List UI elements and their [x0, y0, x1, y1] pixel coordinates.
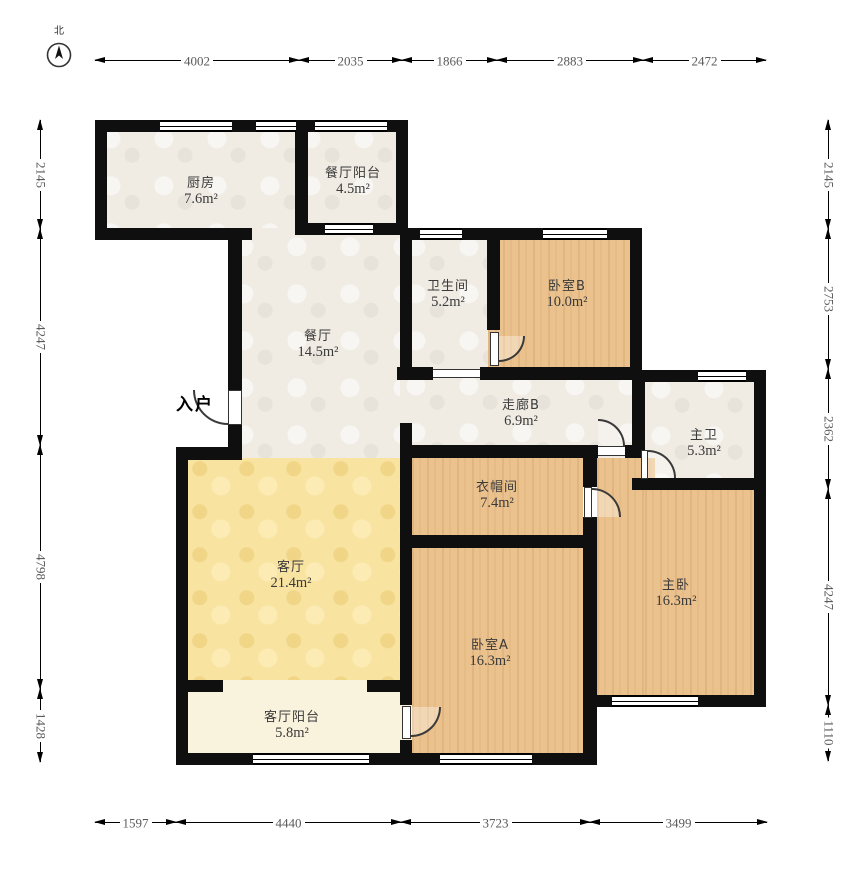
window — [440, 753, 532, 765]
room-area: 7.6m² — [184, 191, 218, 208]
wall-segment — [487, 240, 500, 330]
window — [315, 120, 387, 132]
room-area: 16.3m² — [655, 593, 696, 610]
dim-segment: 2035 — [299, 60, 402, 61]
dim-segment: 1110 — [828, 705, 829, 761]
room-name: 卧室B — [546, 275, 587, 294]
entry-label: 入户 — [176, 390, 214, 415]
dim-segment: 3499 — [590, 822, 767, 823]
wall-segment — [397, 367, 433, 380]
dim-segment: 2472 — [643, 60, 766, 61]
dim-label: 1110 — [823, 717, 836, 748]
room-name: 餐厅 — [297, 325, 338, 344]
dim-segment: 3723 — [401, 822, 590, 823]
wall-segment — [400, 240, 412, 380]
room-area: 5.3m² — [687, 443, 721, 460]
label-dining-balcony: 餐厅阳台 4.5m² — [325, 162, 381, 198]
dim-label: 2145 — [823, 159, 836, 191]
wall-segment — [396, 120, 408, 235]
dim-label: 3499 — [663, 817, 695, 830]
label-living: 客厅 21.4m² — [270, 556, 311, 592]
wall-segment — [583, 458, 597, 487]
label-living-balcony: 客厅阳台 5.8m² — [264, 706, 320, 742]
svg-text:北: 北 — [54, 25, 64, 37]
dim-label: 2035 — [335, 55, 367, 68]
room-name: 衣帽间 — [476, 476, 518, 495]
window — [612, 695, 698, 707]
dim-label: 1866 — [434, 55, 466, 68]
label-bedroom-b: 卧室B 10.0m² — [546, 275, 587, 311]
dim-segment: 2883 — [497, 60, 643, 61]
room-area: 16.3m² — [469, 653, 510, 670]
bathroom-doorway — [433, 369, 480, 378]
room-name: 客厅阳台 — [264, 706, 320, 725]
room-area: 6.9m² — [502, 413, 540, 430]
room-area: 10.0m² — [546, 294, 587, 311]
dim-label: 2145 — [35, 159, 48, 191]
wall-segment — [176, 447, 188, 765]
wall-segment — [412, 535, 583, 548]
dim-segment: 4247 — [40, 229, 41, 445]
window — [253, 753, 369, 765]
compass-icon: 北 — [42, 22, 76, 74]
room-area: 7.4m² — [476, 495, 518, 512]
entry-door-leaf — [228, 390, 242, 425]
dim-segment: 4002 — [95, 60, 299, 61]
dim-label: 4798 — [35, 551, 48, 583]
dim-segment: 2145 — [828, 120, 829, 229]
wall-segment — [630, 230, 642, 380]
wall-segment — [583, 517, 597, 765]
bedroom-b-door-leaf — [490, 332, 499, 366]
cloakroom-door-leaf — [584, 487, 592, 518]
room-area: 5.8m² — [264, 725, 320, 742]
dim-label: 2472 — [689, 55, 721, 68]
label-bathroom: 卫生间 5.2m² — [427, 275, 469, 311]
dim-label: 4247 — [35, 321, 48, 353]
window — [543, 228, 607, 240]
room-name: 厨房 — [184, 172, 218, 191]
wall-segment — [295, 132, 308, 223]
wall-segment — [95, 228, 252, 240]
dim-label: 2362 — [823, 413, 836, 445]
wall-segment — [632, 382, 645, 450]
wall-segment — [400, 740, 412, 765]
room-area: 14.5m² — [297, 344, 338, 361]
dim-label: 3723 — [480, 817, 512, 830]
room-name: 卧室A — [469, 634, 510, 653]
dim-label: 4002 — [181, 55, 213, 68]
window — [256, 120, 296, 132]
wall-segment — [480, 367, 642, 380]
room-name: 主卫 — [687, 424, 721, 443]
dim-label: 1597 — [120, 817, 152, 830]
room-name: 餐厅阳台 — [325, 162, 381, 181]
label-kitchen: 厨房 7.6m² — [184, 172, 218, 208]
window — [698, 370, 746, 382]
wall-segment — [400, 423, 412, 705]
dim-segment: 2145 — [40, 120, 41, 229]
dim-segment: 1866 — [402, 60, 497, 61]
dim-segment: 1597 — [95, 822, 176, 823]
room-name: 走廊B — [502, 394, 540, 413]
label-dining: 餐厅 14.5m² — [297, 325, 338, 361]
master-bath-door-leaf — [641, 450, 648, 479]
room-area: 4.5m² — [325, 181, 381, 198]
wall-segment — [412, 445, 598, 458]
dim-segment: 2362 — [828, 369, 829, 489]
compass: 北 — [42, 22, 76, 78]
dim-label: 1428 — [35, 710, 48, 742]
room-name: 主卧 — [655, 574, 696, 593]
dim-label: 2883 — [554, 55, 586, 68]
dim-segment: 4440 — [176, 822, 401, 823]
label-master-bedroom: 主卧 16.3m² — [655, 574, 696, 610]
corridor-doorway — [598, 446, 625, 456]
wall-segment — [95, 120, 107, 240]
window — [160, 120, 232, 132]
dim-label: 2753 — [823, 283, 836, 315]
dim-label: 4247 — [823, 581, 836, 613]
label-bedroom-a: 卧室A 16.3m² — [469, 634, 510, 670]
dim-segment: 4247 — [828, 489, 829, 705]
dim-label: 4440 — [273, 817, 305, 830]
dim-segment: 2753 — [828, 229, 829, 369]
room-name: 卫生间 — [427, 275, 469, 294]
balcony-door-leaf — [402, 706, 411, 739]
dim-segment: 1428 — [40, 689, 41, 762]
label-cloakroom: 衣帽间 7.4m² — [476, 476, 518, 512]
dim-segment: 4798 — [40, 445, 41, 689]
window — [420, 228, 462, 240]
floor-plan-page: 厨房 7.6m² 餐厅阳台 4.5m² 餐厅 14.5m² 卫生间 5.2m² … — [0, 0, 863, 889]
label-corridor-b: 走廊B 6.9m² — [502, 394, 540, 430]
wall-segment — [295, 223, 325, 235]
room-area: 21.4m² — [270, 575, 311, 592]
wall-segment — [228, 240, 242, 390]
wall-segment — [632, 478, 766, 490]
room-name: 客厅 — [270, 556, 311, 575]
wall-segment — [176, 680, 223, 692]
window — [325, 223, 373, 235]
wall-segment — [754, 370, 766, 707]
label-master-bath: 主卫 5.3m² — [687, 424, 721, 460]
room-area: 5.2m² — [427, 294, 469, 311]
